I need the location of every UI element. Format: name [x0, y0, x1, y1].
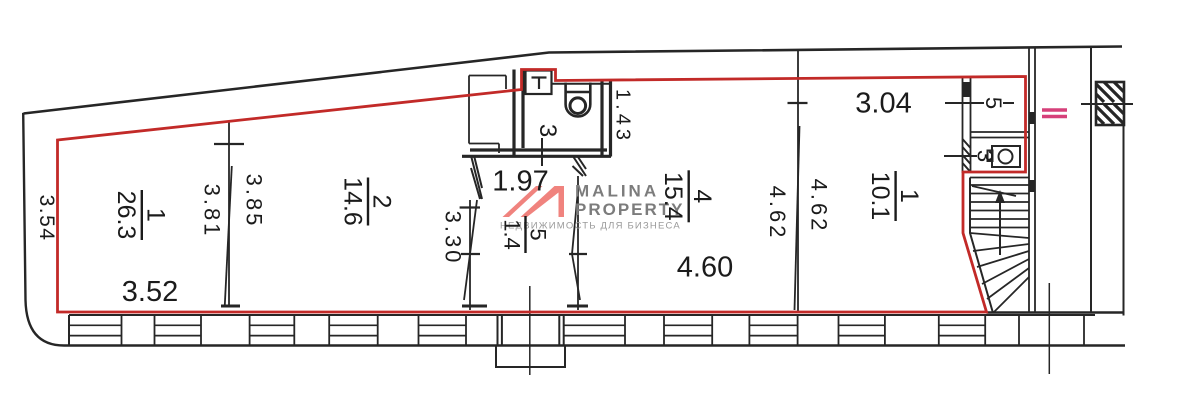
svg-text:3.30: 3.30	[441, 211, 466, 266]
svg-text:3.81: 3.81	[200, 184, 225, 239]
svg-text:1: 1	[895, 189, 923, 203]
svg-text:4.60: 4.60	[677, 252, 733, 284]
svg-text:1.4: 1.4	[500, 219, 525, 250]
svg-text:14.6: 14.6	[338, 177, 366, 226]
svg-text:5: 5	[981, 97, 1006, 109]
svg-text:3.54: 3.54	[35, 195, 58, 242]
svg-text:3: 3	[534, 124, 561, 137]
svg-text:2: 2	[368, 195, 396, 209]
svg-text:15.4: 15.4	[659, 172, 687, 221]
svg-text:4.62: 4.62	[807, 179, 832, 234]
svg-text:1.43: 1.43	[612, 89, 634, 144]
svg-text:10.1: 10.1	[866, 172, 894, 221]
svg-text:3: 3	[973, 150, 998, 162]
svg-text:1: 1	[141, 208, 169, 222]
svg-text:4: 4	[688, 189, 716, 203]
svg-text:4.62: 4.62	[765, 186, 790, 241]
svg-text:3.85: 3.85	[242, 174, 267, 229]
svg-text:26.3: 26.3	[112, 191, 140, 240]
svg-text:MALINA: MALINA	[575, 182, 659, 201]
svg-text:1.97: 1.97	[492, 166, 548, 198]
svg-text:3.04: 3.04	[855, 88, 911, 120]
svg-text:5: 5	[526, 228, 551, 240]
svg-text:3.52: 3.52	[122, 276, 178, 308]
